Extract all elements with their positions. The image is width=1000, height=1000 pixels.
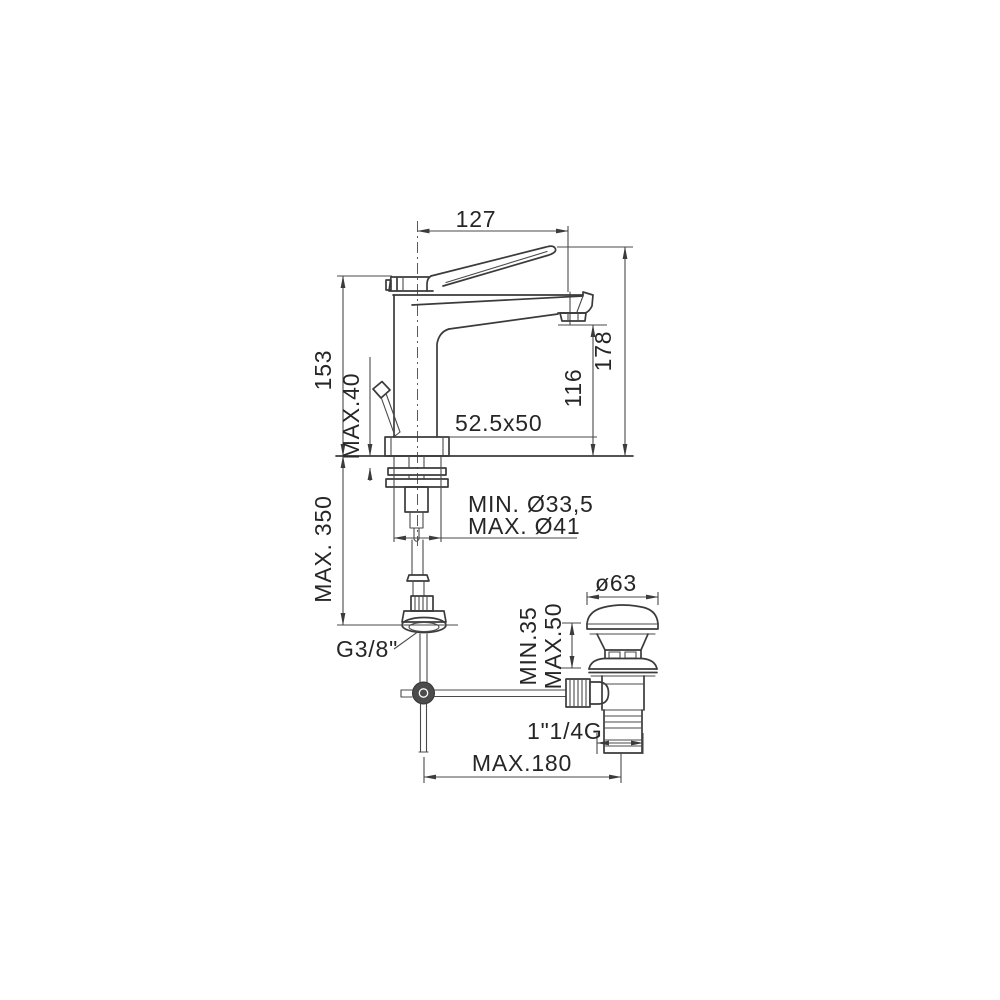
dim-waste-thread: 1"1/4G (527, 718, 643, 754)
dim-116-label: 116 (560, 368, 586, 407)
dim-g38: G3/8" (336, 631, 419, 662)
dim-g38-label: G3/8" (336, 636, 398, 662)
hose-crimp-ridges (411, 596, 433, 611)
dim-max40-label: MAX.40 (338, 373, 364, 460)
vertical-rod-lower (419, 704, 428, 752)
technical-drawing-canvas: 127 153 MAX.40 178 116 52.5 (0, 0, 1000, 1000)
aerator (560, 313, 586, 321)
horizontal-rod (435, 690, 567, 697)
dim-hole-max-label: MAX. Ø41 (468, 513, 581, 539)
dim-max180: MAX.180 (424, 750, 621, 783)
dim-base-footprint: 52.5x50 (449, 410, 597, 437)
dim-min35-label: MIN.35 (515, 607, 541, 686)
dim-178-label: 178 (590, 331, 616, 372)
dim-153-label: 153 (310, 350, 336, 391)
faucet-dimension-drawing: 127 153 MAX.40 178 116 52.5 (0, 0, 1000, 1000)
supply-hose (402, 540, 446, 633)
dim-max350: MAX. 350 (310, 456, 458, 625)
dim-max350-label: MAX. 350 (310, 495, 336, 602)
dim-basin-thickness: MIN.35 MAX.50 (515, 603, 581, 690)
adjuster-collar (590, 682, 609, 704)
dim-max180-label: MAX.180 (472, 750, 572, 776)
dim-127-label: 127 (456, 206, 497, 232)
threaded-shank (405, 487, 428, 512)
dim-d63-label: ø63 (595, 570, 637, 596)
handle-base (386, 277, 433, 291)
waste-cap (587, 605, 658, 634)
handle-lever (427, 246, 556, 291)
popup-pull-knob (373, 382, 400, 437)
cap-neck (597, 634, 648, 650)
basin-flange (589, 659, 657, 677)
ball-joint (413, 682, 435, 704)
dim-hole-diameter: MIN. Ø33,5 MAX. Ø41 (394, 457, 594, 542)
dim-waste-thread-label: 1"1/4G (527, 718, 603, 744)
g38-connection-nut (402, 611, 446, 633)
rod-left-stub (401, 690, 412, 697)
dim-127: 127 (418, 206, 569, 292)
waste-tailpiece (604, 710, 642, 753)
dim-base-label: 52.5x50 (455, 410, 542, 436)
waste-upper-body (605, 650, 641, 658)
dim-d63: ø63 (587, 570, 658, 605)
dim-max50-label: MAX.50 (540, 603, 566, 690)
